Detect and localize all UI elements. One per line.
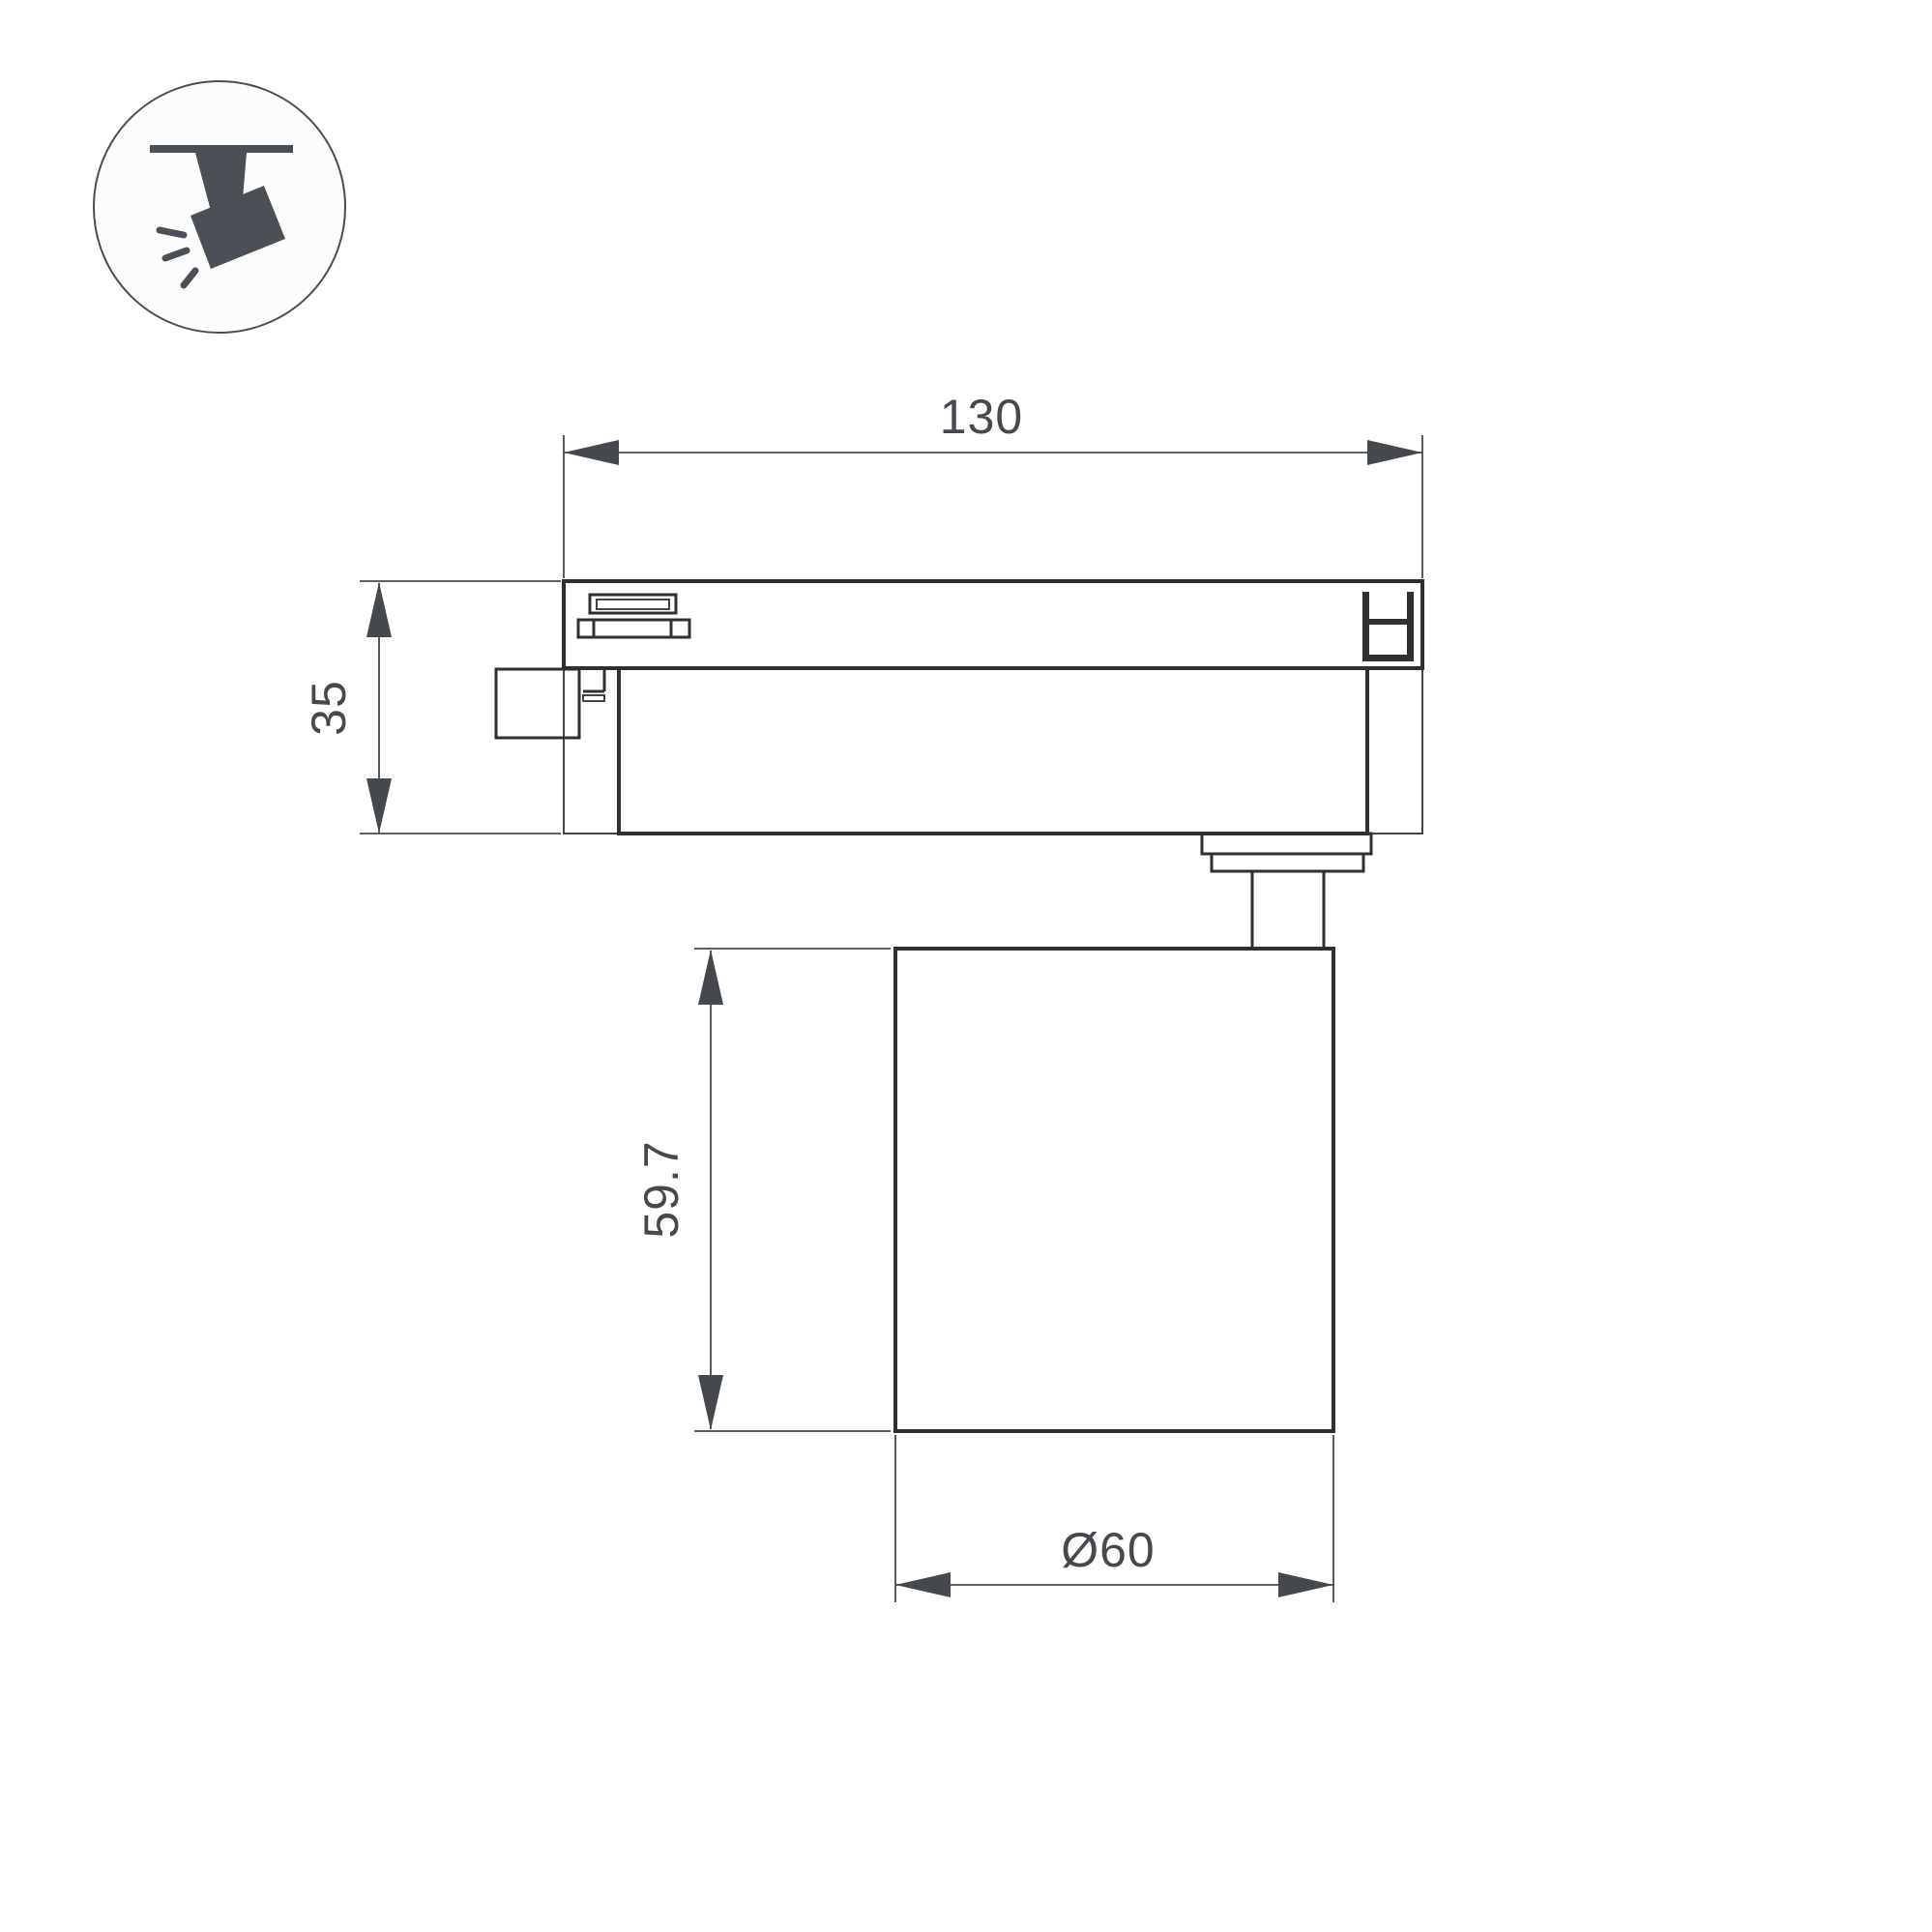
arrowhead-left [895,1572,951,1597]
stem-flange-lower [1212,854,1363,871]
technical-drawing: 130 35 59.7 Ø60 [0,0,1932,1932]
arrowhead-up [366,582,392,637]
lamp-body [895,949,1333,1431]
arrowhead-right [1278,1572,1333,1597]
clip-right-wall [1407,592,1414,661]
clip-crossbar [1369,619,1407,625]
dimension-label-130: 130 [940,390,1023,444]
dimension-body-height: 59.7 [634,949,891,1431]
adapter-lower-housing [619,668,1367,834]
clip-left-wall [1362,592,1369,661]
icon-track-bar [150,145,293,153]
adapter-lower-outer [564,668,1422,834]
contact-slot-upper-inner [597,600,669,609]
icon-light-ray [160,230,184,235]
dimension-label-35: 35 [302,680,356,736]
dimension-track-width: 130 [564,390,1422,578]
adapter-top-band [564,581,1422,668]
contact-slot-upper [590,595,676,613]
switch-bracket-bar [583,695,604,701]
arrowhead-up [698,950,723,1005]
dimension-label-59-7: 59.7 [634,1140,688,1238]
clip-bottom [1362,655,1414,661]
track-adapter-outline [496,581,1422,949]
stem-flange-upper [1202,834,1371,854]
dimension-label-d60: Ø60 [1061,1523,1156,1577]
locking-clip [1362,592,1414,661]
arrowhead-down [366,778,392,834]
arrowhead-left [564,440,619,465]
arrowhead-down [698,1375,723,1430]
drawing-page: 130 35 59.7 Ø60 [0,0,1932,1932]
arrowhead-right [1367,440,1422,465]
dimension-adapter-height: 35 [302,581,561,834]
spotlight-icon [94,81,345,333]
dimension-body-diameter: Ø60 [895,1435,1333,1602]
adapter-switch-box [496,669,579,738]
